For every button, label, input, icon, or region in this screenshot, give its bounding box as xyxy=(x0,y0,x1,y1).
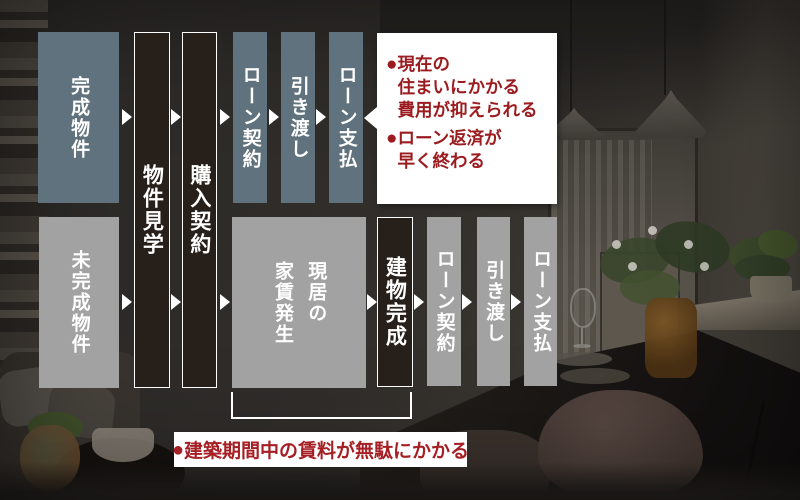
flower-greenery xyxy=(597,232,674,288)
pendant-lamp xyxy=(636,90,706,138)
bullet-icon: ● xyxy=(386,127,397,150)
callout-tail-icon xyxy=(364,107,377,129)
potted-plant xyxy=(725,233,777,274)
step-label: 完成物件 xyxy=(62,76,95,160)
warning-callout: ● 建築期間中の賃料が無駄にかかる xyxy=(174,432,467,467)
step-label: 建物完成 xyxy=(377,256,414,348)
wood-floor xyxy=(660,418,800,500)
white-flower xyxy=(684,240,693,249)
window-pane xyxy=(600,252,680,402)
sofa-pillow xyxy=(45,382,116,441)
wine-glass xyxy=(570,288,596,328)
benefits-callout: ● 現在の 住まいにかかる 費用が抑えられる ● ローン返済が 早く終わる xyxy=(377,33,557,204)
potted-plant xyxy=(735,255,790,281)
step-label: 引き渡し xyxy=(281,76,314,160)
decor-bowl xyxy=(92,428,154,462)
white-flower xyxy=(612,240,621,249)
benefit-text: ローン返済が 早く終わる xyxy=(397,127,501,173)
benefit-item: ● 現在の 住まいにかかる 費用が抑えられる xyxy=(386,53,549,122)
bullet-icon: ● xyxy=(386,53,397,76)
step-label: 購入契約 xyxy=(181,164,218,256)
benefit-item: ● ローン返済が 早く終わる xyxy=(386,127,549,173)
amber-glass-vase xyxy=(645,298,697,378)
table-leg xyxy=(742,401,766,499)
wine-glass-stem xyxy=(581,328,583,344)
step-label: ローン契約 xyxy=(427,249,460,354)
bullet-icon: ● xyxy=(172,440,184,460)
sideboard-counter xyxy=(686,290,800,330)
dining-table xyxy=(360,318,800,500)
step-loan-payment-top: ローン支払 xyxy=(329,32,363,203)
step-label: 現居の 家賃発生 xyxy=(266,261,333,345)
step-loan-contract-bottom: ローン契約 xyxy=(427,217,461,386)
step-handover-bottom: 引き渡し xyxy=(477,217,510,386)
step-property-viewing: 物件見学 xyxy=(134,32,170,388)
right-arrow-icon xyxy=(220,294,230,310)
step-handover-top: 引き渡し xyxy=(281,32,315,203)
decor-vase xyxy=(20,425,80,491)
window xyxy=(548,128,698,428)
warning-text: 建築期間中の賃料が無駄にかかる xyxy=(184,436,469,463)
coffee-table xyxy=(55,438,185,500)
pendant-lamp-cord xyxy=(570,0,572,112)
step-completed-property: 完成物件 xyxy=(38,32,119,203)
step-current-rent: 現居の 家賃発生 xyxy=(232,217,366,388)
step-label: ローン契約 xyxy=(233,65,266,170)
flower-greenery xyxy=(651,215,735,280)
step-label: ローン支払 xyxy=(524,249,557,354)
step-purchase-contract: 購入契約 xyxy=(182,32,217,388)
step-label: 引き渡し xyxy=(477,260,510,344)
step-unfinished-property: 未完成物件 xyxy=(39,217,119,388)
right-arrow-icon xyxy=(462,294,472,310)
white-flower xyxy=(648,226,657,235)
right-arrow-icon xyxy=(171,294,181,310)
small-plant xyxy=(28,412,83,442)
step-loan-contract-top: ローン契約 xyxy=(233,32,267,203)
wine-glass-base xyxy=(573,344,591,348)
step-loan-payment-bottom: ローン支払 xyxy=(524,217,557,386)
right-arrow-icon xyxy=(122,294,132,310)
step-label: 物件見学 xyxy=(134,164,171,256)
rent-period-bracket xyxy=(231,392,412,419)
flower-greenery xyxy=(620,270,680,305)
curtain xyxy=(552,140,652,420)
right-arrow-icon xyxy=(316,109,326,125)
right-arrow-icon xyxy=(171,109,181,125)
right-arrow-icon xyxy=(511,294,521,310)
floor-shadow xyxy=(0,462,800,500)
pendant-lamp-cord xyxy=(664,0,666,95)
right-wall xyxy=(700,0,800,310)
step-building-complete: 建物完成 xyxy=(377,217,413,387)
chair-leg xyxy=(682,441,700,500)
step-label: 未完成物件 xyxy=(62,250,95,355)
dining-chair xyxy=(538,390,703,500)
benefit-text: 現在の 住まいにかかる 費用が抑えられる xyxy=(397,53,537,122)
potted-plant xyxy=(756,227,800,262)
right-arrow-icon xyxy=(367,294,377,310)
step-label: ローン支払 xyxy=(329,65,362,170)
right-arrow-icon xyxy=(269,109,279,125)
right-arrow-icon xyxy=(414,294,424,310)
real-estate-flow-infographic: 完成物件 物件見学 購入契約 ローン契約 引き渡し ローン支払 未完成物件 現居… xyxy=(0,0,800,500)
place-setting xyxy=(560,368,630,384)
plant-pot xyxy=(750,276,792,302)
white-flower xyxy=(700,262,709,271)
right-arrow-icon xyxy=(220,109,230,125)
right-arrow-icon xyxy=(122,109,132,125)
white-flower xyxy=(628,262,637,271)
place-setting xyxy=(552,352,612,366)
